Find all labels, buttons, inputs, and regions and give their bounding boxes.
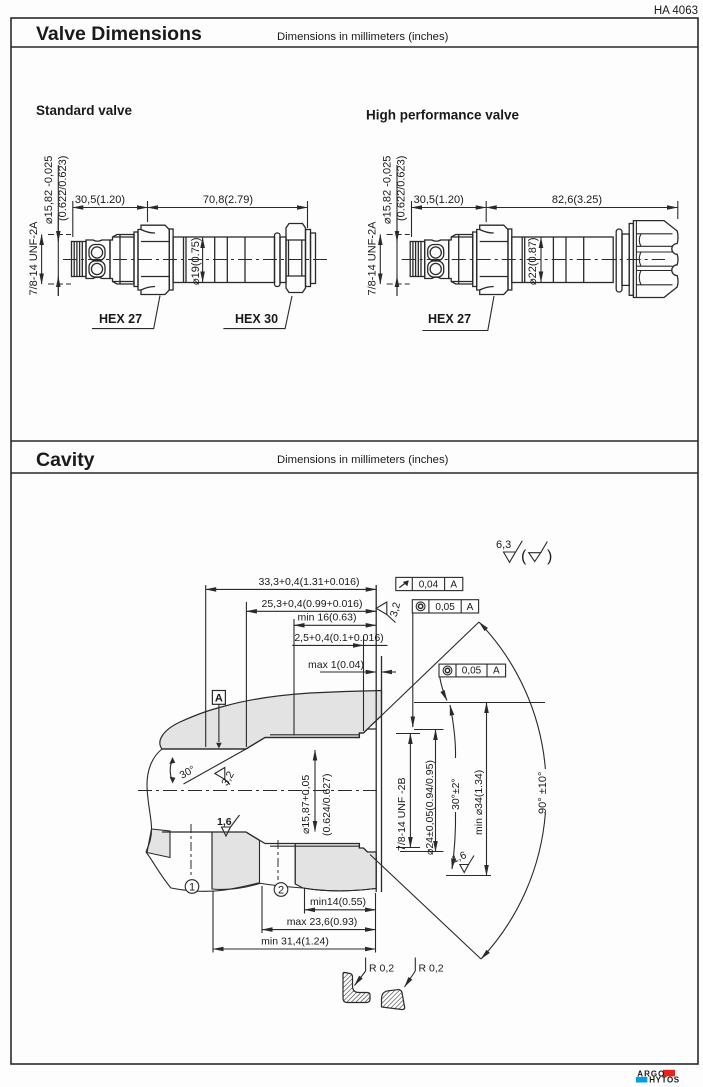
svg-text:HA 4063: HA 4063: [654, 5, 698, 17]
svg-text:0,05: 0,05: [435, 602, 455, 613]
svg-text:Cavity: Cavity: [36, 449, 95, 471]
svg-text:⌀22(0.87): ⌀22(0.87): [527, 237, 539, 285]
svg-text:A: A: [215, 693, 223, 705]
svg-text:25,3+0,4(0.99+0.016): 25,3+0,4(0.99+0.016): [261, 598, 362, 610]
svg-text:Dimensions in millimeters (inc: Dimensions in millimeters (inches): [277, 31, 449, 43]
svg-text:HEX 30: HEX 30: [235, 312, 278, 326]
svg-text:(0.624/0.627): (0.624/0.627): [321, 774, 333, 836]
svg-text:HYTOS: HYTOS: [649, 1076, 679, 1085]
svg-text:⌀15,82 -0,025: ⌀15,82 -0,025: [43, 156, 55, 224]
svg-text:R 0,2: R 0,2: [419, 963, 444, 975]
svg-text:7/8-14 UNF-2A: 7/8-14 UNF-2A: [367, 221, 379, 296]
svg-text:A: A: [467, 602, 474, 613]
svg-text:Valve Dimensions: Valve Dimensions: [36, 23, 202, 45]
svg-text:⌀19(0.75): ⌀19(0.75): [190, 237, 202, 285]
svg-text:1,6: 1,6: [217, 816, 232, 828]
svg-text:2: 2: [278, 885, 284, 897]
svg-text:90° ±10°: 90° ±10°: [537, 772, 549, 814]
svg-text:HEX 27: HEX 27: [428, 312, 471, 326]
svg-text:7/8-14 UNF-2A: 7/8-14 UNF-2A: [28, 221, 40, 296]
svg-text:30°: 30°: [178, 763, 198, 781]
svg-text:⌀15,87+0,05: ⌀15,87+0,05: [300, 775, 312, 834]
svg-text:Dimensions in millimeters (inc: Dimensions in millimeters (inches): [277, 454, 449, 466]
svg-text:A: A: [450, 579, 457, 590]
svg-text:0,04: 0,04: [419, 579, 439, 590]
svg-text:30°±2°: 30°±2°: [450, 778, 462, 810]
svg-text:max 1(0.04): max 1(0.04): [308, 659, 364, 671]
svg-text:min ⌀34(1.34): min ⌀34(1.34): [473, 770, 485, 835]
svg-text:3,2: 3,2: [219, 769, 237, 788]
svg-text:Standard valve: Standard valve: [36, 103, 133, 118]
svg-text:6,3: 6,3: [496, 539, 511, 551]
svg-text:30,5(1.20): 30,5(1.20): [414, 194, 464, 206]
svg-text:(: (: [521, 548, 527, 565]
svg-text:High performance valve: High performance valve: [366, 108, 520, 123]
svg-text:70,8(2.79): 70,8(2.79): [203, 194, 253, 206]
svg-text:min14(0.55): min14(0.55): [310, 896, 366, 908]
svg-text:1: 1: [189, 882, 195, 894]
svg-text:): ): [547, 548, 552, 565]
svg-text:7/8-14 UNF -2B: 7/8-14 UNF -2B: [396, 777, 408, 851]
svg-text:HEX 27: HEX 27: [99, 312, 142, 326]
svg-text:⌀15,82 -0,025: ⌀15,82 -0,025: [382, 156, 394, 224]
svg-text:R 0,2: R 0,2: [369, 963, 394, 975]
svg-text:⌀24±0,05(0.94/0.95): ⌀24±0,05(0.94/0.95): [424, 760, 436, 855]
svg-text:A: A: [493, 666, 500, 677]
svg-text:0,05: 0,05: [462, 666, 482, 677]
svg-text:33,3+0,4(1.31+0.016): 33,3+0,4(1.31+0.016): [258, 576, 359, 588]
svg-text:max 23,6(0.93): max 23,6(0.93): [287, 916, 358, 928]
svg-text:min 31,4(1.24): min 31,4(1.24): [261, 936, 329, 948]
svg-text:min 16(0.63): min 16(0.63): [298, 612, 357, 624]
svg-text:82,6(3.25): 82,6(3.25): [552, 194, 602, 206]
svg-text:2,5+0,4(0.1+0.016): 2,5+0,4(0.1+0.016): [294, 632, 383, 644]
svg-text:3,2: 3,2: [388, 601, 403, 618]
svg-text:30,5(1.20): 30,5(1.20): [75, 194, 125, 206]
